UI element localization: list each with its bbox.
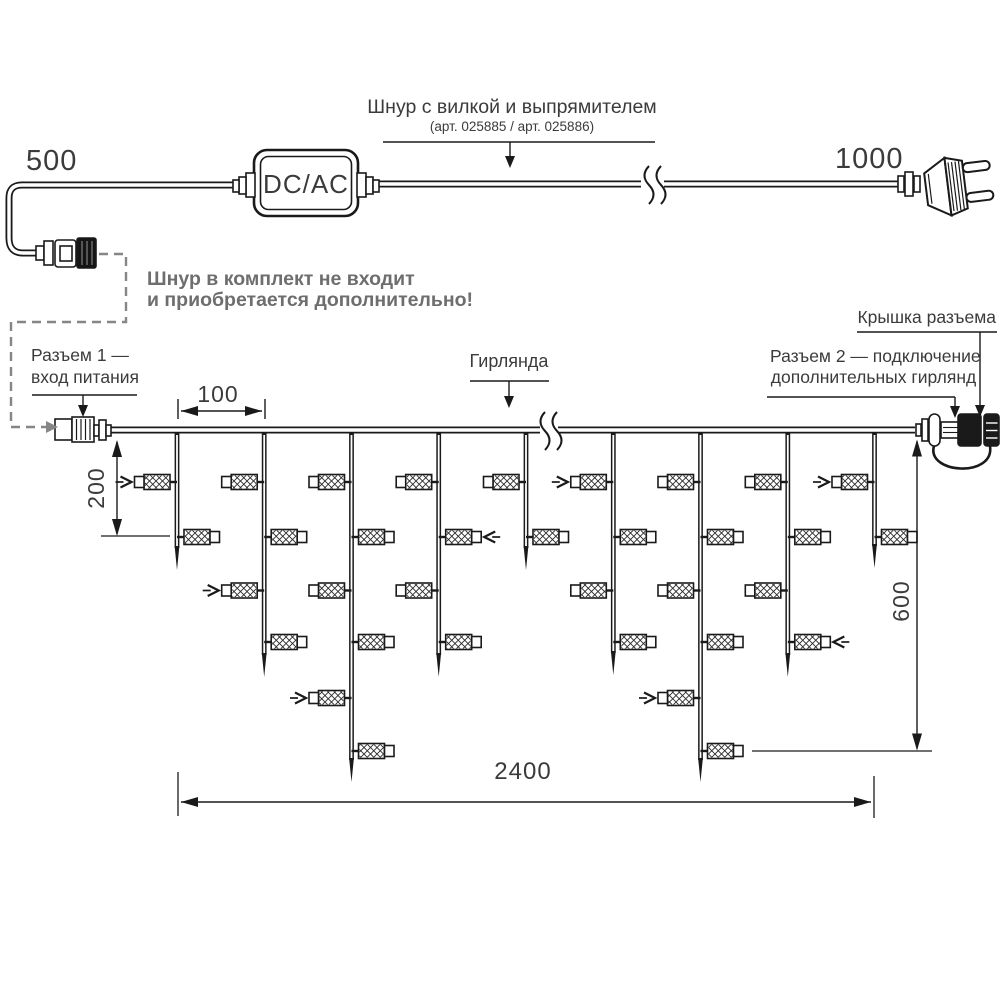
connector2-label: Разъем 2 — подключение дополнительных ги… bbox=[770, 346, 977, 388]
cord-note-line1: Шнур в комплект не входит bbox=[147, 269, 415, 290]
dim-length-2400: 2400 bbox=[483, 758, 563, 786]
connector1-label-line2: вход питания bbox=[31, 367, 139, 388]
cord-left-length: 500 bbox=[26, 145, 77, 178]
dim-first-drop-200: 200 bbox=[84, 463, 108, 513]
dim-spacing-100: 100 bbox=[193, 381, 243, 408]
cord-article-numbers: (арт. 025885 / арт. 025886) bbox=[362, 119, 662, 134]
garland-label: Гирлянда bbox=[454, 351, 564, 372]
connector2-label-line2: дополнительных гирлянд bbox=[770, 367, 977, 388]
cord-right-length: 1000 bbox=[835, 143, 904, 176]
connector2-label-line1: Разъем 2 — подключение bbox=[770, 346, 977, 367]
cord-title: Шнур с вилкой и выпрямителем bbox=[362, 96, 662, 119]
dcac-converter-label: DC/AC bbox=[254, 169, 358, 200]
cord-note-line2: и приобретается дополнительно! bbox=[147, 290, 473, 311]
connector1-label-line1: Разъем 1 — bbox=[31, 345, 129, 366]
cap-label: Крышка разъема bbox=[840, 307, 996, 328]
diagram-page: 500 1000 Шнур с вилкой и выпрямителем (а… bbox=[0, 0, 1000, 1000]
dim-height-600: 600 bbox=[889, 576, 913, 626]
